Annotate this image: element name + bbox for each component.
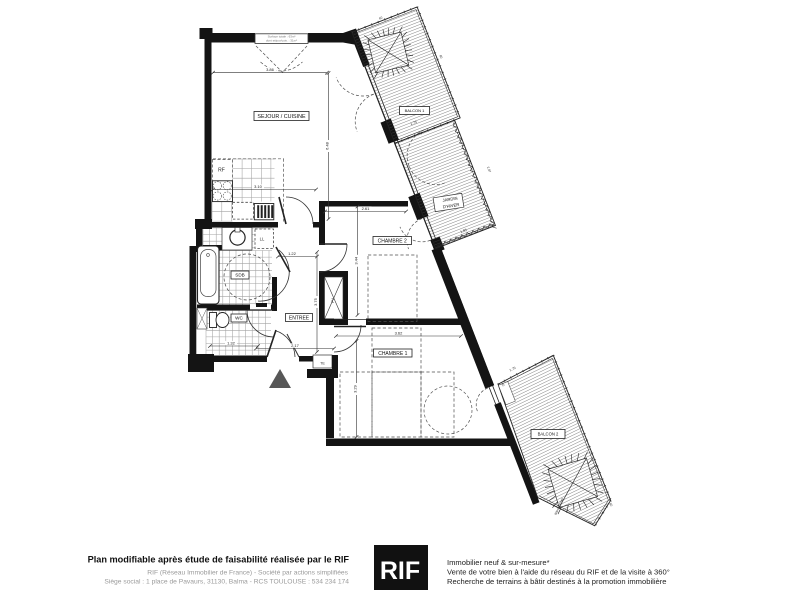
svg-text:3.29: 3.29	[352, 384, 357, 393]
svg-text:3.86: 3.86	[266, 67, 275, 72]
svg-text:SDB: SDB	[235, 273, 244, 278]
svg-text:WC: WC	[235, 316, 243, 321]
svg-text:3.75: 3.75	[313, 297, 318, 306]
svg-text:1.22: 1.22	[288, 251, 297, 256]
svg-text:6.48: 6.48	[324, 141, 329, 150]
svg-text:3.44: 3.44	[353, 256, 358, 265]
svg-text:3.62: 3.62	[395, 331, 404, 336]
svg-text:ENTREE: ENTREE	[289, 315, 310, 321]
svg-text:dont séjour/cuis. : 31m²: dont séjour/cuis. : 31m²	[266, 39, 297, 43]
svg-text:CHAMBRE 2: CHAMBRE 2	[378, 238, 407, 244]
svg-text:CHAMBRE 1: CHAMBRE 1	[378, 351, 407, 357]
svg-text:RIF (Réseau Immobilier de Fran: RIF (Réseau Immobilier de France) - Soci…	[147, 570, 348, 577]
svg-text:1.32: 1.32	[227, 341, 236, 346]
svg-text:2.61: 2.61	[362, 206, 371, 211]
svg-text:PV: PV	[331, 298, 335, 304]
svg-text:Immobilier neuf & sur-mesure*: Immobilier neuf & sur-mesure*	[447, 558, 550, 567]
svg-text:BALCON 1: BALCON 1	[405, 108, 426, 113]
svg-text:TE: TE	[320, 362, 325, 366]
svg-text:BALCON 2: BALCON 2	[538, 432, 559, 437]
svg-text:3.10: 3.10	[254, 184, 263, 189]
svg-text:2.17: 2.17	[291, 343, 300, 348]
svg-text:LL: LL	[260, 237, 265, 242]
svg-text:Vente de votre bien à l'aide d: Vente de votre bien à l'aide du réseau d…	[447, 568, 670, 577]
svg-text:RIF: RIF	[380, 557, 420, 585]
svg-text:Recherche de terrains à bâtir: Recherche de terrains à bâtir destinés à…	[447, 577, 666, 586]
svg-text:SEJOUR / CUISINE: SEJOUR / CUISINE	[257, 114, 306, 120]
svg-text:Plan modifiable après étude de: Plan modifiable après étude de faisabili…	[88, 555, 350, 565]
svg-text:RF: RF	[218, 168, 225, 174]
svg-text:Siège social : 1 place de Pava: Siège social : 1 place de Pavaurs, 31130…	[104, 579, 349, 586]
